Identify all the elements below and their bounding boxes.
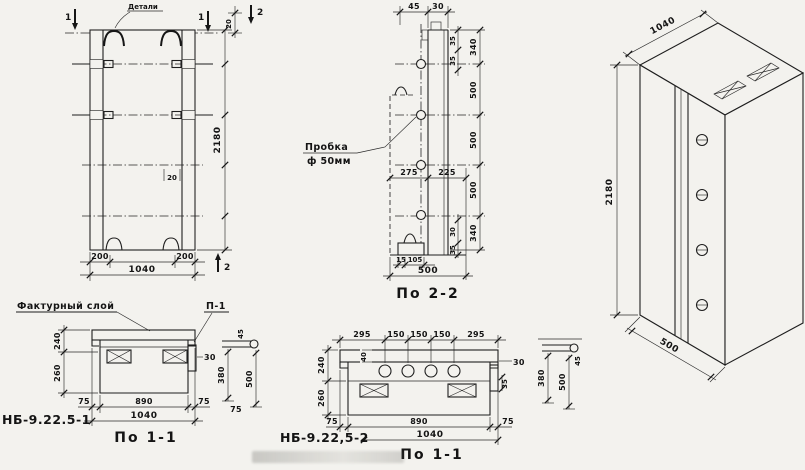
dim-top-gap: 20 (225, 6, 242, 38)
dim-bar-group: 30 35 (499, 358, 525, 392)
dim-width-total: 1040 (128, 265, 155, 275)
caption-plan-2: По 1-1 (400, 447, 464, 463)
dim-200-right: 200 (176, 252, 194, 261)
caption-plan-1: По 1-1 (114, 430, 178, 446)
dim-foot-35: 35 (449, 245, 457, 255)
dim-890: 890 (135, 397, 153, 406)
dim-neck-group: 35 35 (449, 26, 461, 76)
top-notch (422, 30, 428, 40)
dim-35b: 35 (449, 56, 457, 66)
dim-340-top: 340 (469, 38, 478, 56)
detail-dim-45: 45 (237, 329, 245, 339)
dim-295-left: 295 (353, 330, 371, 339)
pocket-right (448, 384, 476, 397)
figure-plan-2: 295 150 150 150 295 40 (280, 330, 582, 463)
dim-150-c: 150 (433, 330, 451, 339)
panel-outline (90, 30, 195, 250)
dim-1040: 1040 (130, 411, 157, 421)
dim-40-facing: 40 (360, 352, 368, 362)
section-mark-1-left: 1 (65, 9, 78, 30)
section-number: 2 (257, 8, 264, 18)
dim-facing-group: 40 (360, 349, 372, 364)
dim-260: 260 (53, 364, 62, 382)
dim-30: 30 (432, 2, 444, 11)
dim-bottom-group: 75 890 75 1040 (78, 348, 210, 426)
dim-iso-height: 2180 (605, 62, 638, 318)
dim-890: 890 (410, 417, 428, 426)
dim-height-group: 2180 (197, 27, 232, 253)
dim-bar-group: 30 (197, 353, 216, 362)
dim-foot-30: 30 (449, 227, 457, 237)
top-tenon (431, 22, 441, 30)
section-number: 1 (198, 13, 205, 23)
dim-iso-1040: 1040 (649, 15, 678, 37)
plug-label: Пробка ф 50мм (303, 117, 416, 167)
connector-bar (490, 365, 498, 391)
scan-smudge-artifact (252, 451, 404, 463)
detail-dim-45: 45 (574, 356, 582, 366)
dim-225: 225 (438, 168, 456, 177)
dim-bottom-group: 200 200 1040 (80, 252, 205, 281)
figure-section-2-2: Пробка ф 50мм 45 30 35 35 (303, 2, 485, 302)
product-mark-nb-2: НБ-9.22,5-2 (280, 430, 369, 445)
detail-dim-500: 500 (245, 370, 254, 388)
dim-75-left: 75 (326, 417, 338, 426)
facing-leader-line (117, 312, 150, 331)
caption-section-2-2: По 2-2 (396, 286, 460, 302)
dim-bar-35: 35 (501, 379, 509, 389)
band-end-steps (92, 340, 195, 346)
figure-isometric: 1040 2180 500 (605, 10, 803, 382)
section-mark-1-right: 1 (198, 11, 211, 32)
dim-150-a: 150 (387, 330, 405, 339)
dim-75-left: 75 (78, 397, 90, 406)
figure-plan-1: Фактурный слой П-1 240 260 30 (2, 301, 262, 446)
p1-label: П-1 (206, 301, 226, 312)
product-mark-nb-1: НБ-9.22.5-1 (2, 412, 91, 427)
detail-label: Детали (128, 3, 158, 11)
drawing-svg: Детали 1 1 20 2 2 20 (0, 0, 805, 470)
detail-dim-380: 380 (537, 369, 546, 387)
p1-leader-line (194, 313, 212, 342)
dim-200-left: 200 (91, 252, 109, 261)
dim-left-group: 240 260 (317, 345, 346, 420)
figure-elevation: Детали 1 1 20 2 2 20 (65, 3, 264, 281)
hole-circles (379, 365, 460, 377)
dim-bar-30: 30 (204, 353, 216, 362)
dim-340-bottom: 340 (469, 224, 478, 242)
dim-75-right: 75 (502, 417, 514, 426)
dim-240: 240 (53, 332, 62, 350)
dim-240: 240 (317, 356, 326, 374)
dim-base-group: 15 105 500 (383, 256, 473, 281)
dim-500-a: 500 (469, 81, 478, 99)
pocket-left (360, 384, 388, 397)
detail-dim-500: 500 (558, 373, 567, 391)
dim-500-c: 500 (469, 181, 478, 199)
dim-iso-2180: 2180 (605, 178, 615, 205)
dim-bar-30: 30 (513, 358, 525, 367)
section-number: 1 (65, 13, 72, 23)
side-detail-2: 45 380 500 (537, 339, 582, 409)
detail-leader-line (115, 12, 130, 28)
section-mark-2-bottom: 2 (215, 253, 231, 273)
dim-105: 105 (408, 256, 423, 264)
side-face (640, 65, 725, 365)
dim-left-group: 240 260 (53, 325, 98, 398)
body-outline (100, 340, 188, 393)
dim-gap-top: 20 (225, 19, 233, 29)
plug-leader-line (357, 117, 416, 153)
dim-260: 260 (317, 389, 326, 407)
side-detail-1: 45 380 500 75 (217, 329, 262, 414)
technical-drawing-sheet: Детали 1 1 20 2 2 20 (0, 0, 805, 470)
dim-500-b: 500 (469, 131, 478, 149)
front-face (725, 73, 803, 365)
facing-layer-band (92, 330, 195, 340)
detail-dim-380: 380 (217, 366, 226, 384)
dim-35a: 35 (449, 36, 457, 46)
edge-loop (395, 87, 407, 95)
section-number: 2 (224, 263, 231, 273)
dim-75-right: 75 (198, 397, 210, 406)
dim-depth-total: 500 (418, 266, 438, 276)
plug-label-line1: Пробка (305, 142, 348, 153)
section-mark-2-top: 2 (248, 5, 264, 24)
facing-layer-label: Фактурный слой (17, 301, 114, 312)
dim-1040: 1040 (416, 430, 443, 440)
dim-pocket-label: 20 (167, 174, 177, 182)
dim-top-group: 45 30 (393, 2, 455, 28)
dim-foot-group: 30 35 (449, 214, 461, 258)
dim-295-right: 295 (467, 330, 485, 339)
pocket-left (107, 350, 131, 363)
dim-top-group: 295 150 150 150 295 (332, 330, 506, 363)
dim-275: 275 (400, 168, 418, 177)
plug-label-line2: ф 50мм (307, 156, 351, 167)
dim-height: 2180 (213, 126, 223, 153)
pocket-right (163, 350, 187, 363)
dim-15: 15 (396, 256, 406, 264)
dim-45: 45 (408, 2, 420, 11)
dim-150-b: 150 (410, 330, 428, 339)
detail-dim-75: 75 (230, 405, 242, 414)
